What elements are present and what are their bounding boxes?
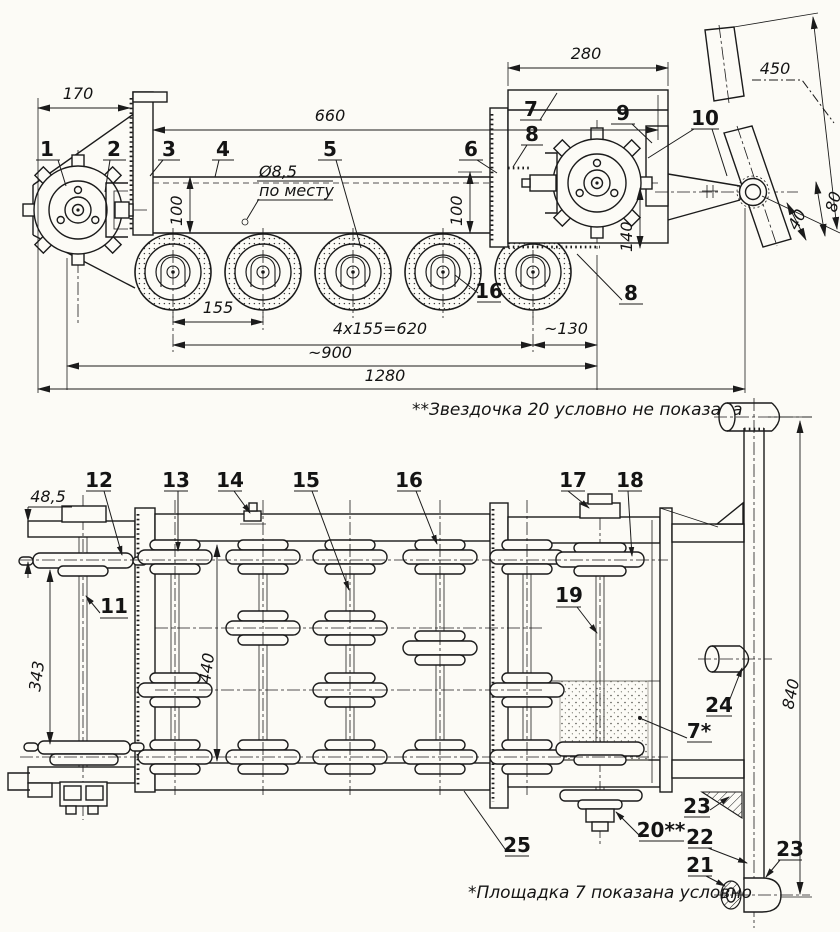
right-sprocket-axle [556,494,644,845]
road-wheel [135,228,211,318]
callout-3: 3 [162,137,176,161]
tiller-bar-upper [705,25,744,103]
weld-mark [702,185,718,198]
dim-100-right: 100 [447,195,466,226]
callout-14: 14 [216,468,244,492]
callout-25: 25 [503,833,531,857]
socket-stub-tube [698,646,772,672]
callout-24: 24 [705,693,733,717]
callout-23a: 23 [683,794,711,818]
callout-18: 18 [616,468,644,492]
callout-13: 13 [162,468,190,492]
dim-900: ~900 [308,343,352,362]
road-wheel [315,228,391,318]
dim-440: 440 [195,652,218,685]
dim-130: ~130 [544,319,588,338]
gearbox-housing [490,90,668,250]
callout-8b: 8 [624,281,638,305]
plan-view: 48,5 343 440 840 12 13 14 15 16 [8,398,812,928]
callout-17: 17 [559,468,587,492]
drawing-sheet: 170 660 280 100 100 140 Ø8,5 по месту [0,0,840,932]
callout-8: 8 [525,122,539,146]
hole-note: по месту [259,181,334,200]
dim-155: 155 [203,298,234,317]
callout-16-side: 16 [475,279,503,303]
dim-280: 280 [571,44,602,63]
road-wheel [225,228,301,318]
dim-343: 343 [25,660,48,693]
dim-620: 4x155=620 [333,319,427,338]
callout-6: 6 [464,137,478,161]
callout-22: 22 [686,825,714,849]
sprocket-footnote: **Звездочка 20 условно не показана [412,400,743,420]
callout-5: 5 [323,137,337,161]
dim-660: 660 [315,106,346,125]
gusset-plate [717,503,743,524]
callout-20: 20** [637,818,686,842]
callout-16-plan: 16 [395,468,423,492]
axle-bolt [115,202,129,218]
dim-48-5: 48,5 [30,487,66,506]
callout-10: 10 [691,106,719,130]
callout-19: 19 [555,583,583,607]
dim-80: 80 [822,189,840,214]
callout-23b: 23 [776,837,804,861]
callout-1: 1 [40,137,54,161]
dim-hole-dia: Ø8,5 [258,162,297,181]
platform-footnote: *Площадка 7 показана условно [468,883,752,903]
callout-2: 2 [107,137,121,161]
axle-nut [586,809,614,822]
callout-15: 15 [292,468,320,492]
callout-7-star: 7* [687,719,712,743]
dim-100-left: 100 [167,195,186,226]
side-view: 170 660 280 100 100 140 Ø8,5 по месту [23,13,840,420]
technical-drawing-canvas: 170 660 280 100 100 140 Ø8,5 по месту [0,0,840,932]
hole-marker [242,219,248,225]
dim-140: 140 [617,221,636,252]
dim-450: 450 [760,59,791,78]
road-wheel [405,228,481,318]
callout-21: 21 [686,853,714,877]
callout-4: 4 [216,137,230,161]
callout-9: 9 [616,101,630,125]
callout-11: 11 [100,594,128,618]
dim-1280: 1280 [365,366,406,385]
tow-hook [8,773,30,790]
dim-170: 170 [63,84,94,103]
callout-7: 7 [524,97,538,121]
callout-12: 12 [85,468,113,492]
dim-840: 840 [778,677,803,711]
